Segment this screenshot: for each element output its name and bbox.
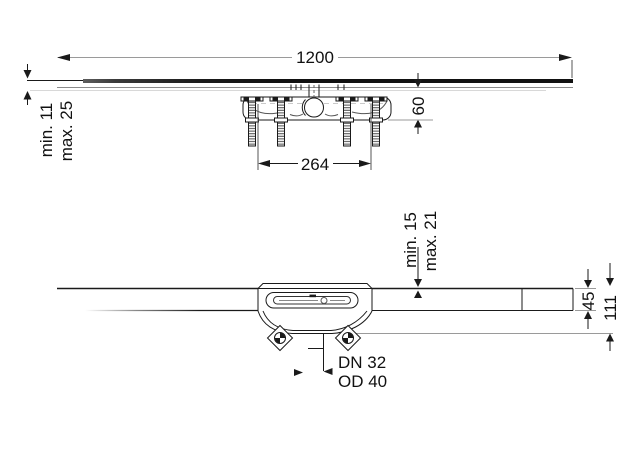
arrowhead-right-icon <box>559 54 572 61</box>
dim-covering-top: min. 11 max. 25 <box>24 64 77 161</box>
dim-channel-height-label: 45 <box>579 292 598 311</box>
leg-collar <box>246 118 259 122</box>
arrowhead-left-icon <box>324 368 333 375</box>
dim-length: 1200 <box>57 48 572 78</box>
leg-threaded-rod <box>373 101 380 146</box>
arrowhead-down-icon <box>414 279 422 287</box>
side-view: min. 15 max. 21 <box>57 211 620 391</box>
drawing-page: 1200 min. 11 max. 25 <box>0 0 640 453</box>
leg-collar <box>275 118 288 122</box>
arrowhead-left-icon <box>57 54 70 61</box>
arrowhead-right-icon <box>294 369 303 376</box>
channel-edge-band <box>83 79 573 83</box>
leg-threaded-rod <box>249 101 256 146</box>
channel-profile <box>27 79 573 91</box>
dim-length-label: 1200 <box>296 48 334 67</box>
arrowhead-up-icon <box>414 291 422 299</box>
dim-total-height: 111 <box>601 263 620 351</box>
dim-depth-label: 60 <box>409 97 428 116</box>
covering-max-label: max. 21 <box>421 211 440 271</box>
covering-min-label: min. 11 <box>37 103 56 158</box>
arrowhead-up-icon <box>606 334 614 342</box>
arrowhead-down-icon <box>606 278 614 286</box>
arrowhead-down-icon <box>584 280 592 288</box>
covering-max-label: max. 25 <box>57 101 76 161</box>
trap-assembly <box>241 85 391 147</box>
covering-min-label: min. 15 <box>401 212 420 268</box>
leg-collar <box>341 118 354 122</box>
arrowhead-up-icon <box>414 120 422 128</box>
outlet-circle <box>305 98 324 117</box>
arrowhead-up-icon <box>584 311 592 319</box>
dim-total-height-label: 111 <box>601 295 620 321</box>
leg-threaded-rod <box>344 101 351 146</box>
arrowhead-up-icon <box>24 91 32 100</box>
grate-tab <box>310 295 317 298</box>
top-view: 1200 min. 11 max. 25 <box>24 48 574 174</box>
leg-threaded-rod <box>278 101 285 146</box>
dim-trap-span-label: 264 <box>301 155 329 174</box>
outlet-od-label: OD 40 <box>338 372 387 391</box>
dim-covering-side: min. 15 max. 21 <box>401 211 440 298</box>
dim-channel-height: 45 <box>575 269 598 329</box>
drain-body-side <box>258 284 613 351</box>
arrowhead-down-icon <box>414 80 422 88</box>
outlet-dn-label: DN 32 <box>338 353 386 372</box>
arrowhead-right-icon <box>359 160 371 167</box>
arrowhead-left-icon <box>258 160 270 167</box>
arrowhead-down-icon <box>24 70 32 79</box>
technical-drawing-canvas: 1200 min. 11 max. 25 <box>0 0 640 453</box>
